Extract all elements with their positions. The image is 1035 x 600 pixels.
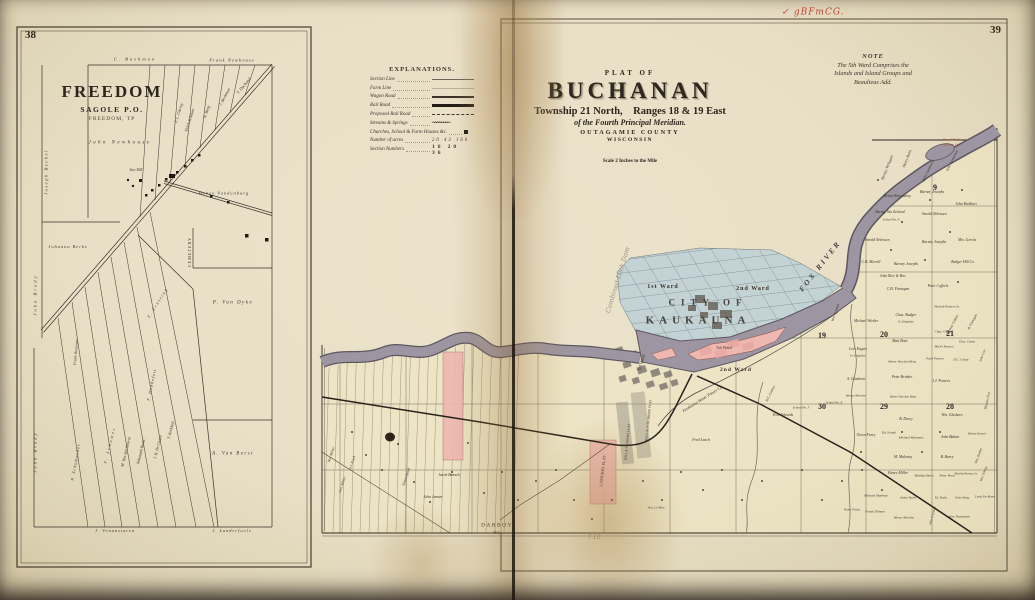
owner-label: Ed. Schmit [882, 431, 896, 434]
owner-label: Peter Coffeels [928, 285, 948, 289]
owner-label: Simon Spauk [402, 468, 411, 487]
owner-label: John Brody [34, 274, 39, 315]
owner-label: M. Vacks [935, 496, 947, 499]
owner-label: John Lamoreux [922, 160, 936, 183]
owner-label: Thomas Fox [984, 392, 991, 410]
owner-label: Michael Maloney [864, 494, 888, 497]
owner-label: Henry Bolin [903, 150, 914, 169]
owner-label: P. Van Dyke [213, 301, 253, 306]
owner-label: J. L. Garvey [174, 103, 184, 124]
owner-label: Henry Mechen [894, 516, 914, 519]
owner-label: Wm. Tondee [975, 448, 984, 464]
owner-label: Frank Bessemer [73, 339, 79, 365]
owner-label: Michael Wieder [854, 320, 878, 324]
red-ink-annotation: ✓ gBFmCG. [781, 9, 844, 18]
owner-label: J. Vonanstaren [95, 529, 135, 533]
owner-label: Wm. Miller [328, 447, 336, 464]
owner-label: J. Landerfools [212, 529, 251, 533]
owner-label: T. Kerkhofs [167, 421, 175, 440]
owner-label: Michael Mahoney [899, 436, 924, 439]
owner-label: B. Finnegan [968, 314, 979, 330]
owner-label: John Brody [34, 431, 39, 472]
owner-label: Frank Tillman [865, 510, 885, 513]
owner-label: Arnold Nelessen [922, 213, 947, 217]
owner-label: Geo. Miller [339, 476, 348, 493]
owner-label: John Rickhart [955, 203, 976, 207]
owner-label: J. B. De Coster [153, 435, 163, 460]
owner-label: Johanna Berks [48, 245, 87, 249]
owner-label: Louis De Bruin [975, 495, 995, 498]
atlas-scan: 38 39 FREEDOM SAGOLE P.O. FREEDOM, TP EX… [0, 0, 1035, 600]
owner-label: Peter Brinker [892, 376, 913, 380]
owner-label: Henry Mechen [846, 394, 866, 397]
section-number: 28 [946, 403, 954, 411]
section-number: 19 [818, 332, 826, 340]
mill-label: Chas. Mill & [942, 138, 959, 141]
owner-label: Barney Josephs [894, 263, 918, 267]
owner-label: Joseph Bechel [45, 149, 50, 195]
owner-label: N. Berg [203, 105, 211, 119]
city-label: KAUKAUNA [646, 316, 751, 327]
owner-label: Barney Josephs [920, 191, 944, 195]
river-label: FOX RIVER [798, 239, 843, 293]
school-label: School No. 8 [826, 401, 842, 404]
owner-label: John Bahan [941, 436, 959, 440]
owner-label: Matt Bour [892, 340, 908, 344]
owner-label: Henry Van den Berg [888, 360, 915, 363]
binding-fold [512, 0, 515, 600]
owner-label: John Steeg [955, 496, 969, 499]
owner-label: J.J. Powers [932, 380, 950, 384]
owner-label: Patrick Powers Sr. [934, 305, 959, 308]
owner-label: Peter Penn [939, 474, 954, 477]
owner-label: Erich Schauer [184, 108, 195, 132]
owner-label: W.S. Conkey [766, 385, 777, 402]
paper-stain [372, 505, 472, 600]
owner-label: J. Beckman [219, 87, 232, 106]
owner-label: Wm. Lamoreux [946, 150, 960, 172]
owner-label: John Coe [979, 349, 987, 362]
owner-label: B. Darcy [899, 418, 913, 422]
owner-label: C.B. Morrill [862, 261, 881, 265]
owner-label: Wm. F. Smith [831, 304, 840, 322]
owner-label: John Thomassen [948, 515, 970, 518]
section-number: 20 [880, 331, 888, 339]
city-label: CITY OF [669, 299, 748, 308]
owner-label: T. Duchand [236, 77, 252, 95]
owner-label: Henry Kessel [968, 432, 986, 435]
owner-label: Wm. Schrug [980, 466, 988, 482]
owner-label: Barney Verhagen [881, 155, 894, 181]
owner-label: Johannah Berks [136, 439, 146, 465]
owner-label: Barney Josephs [922, 241, 946, 245]
owner-label: A. Van Berst [212, 453, 254, 458]
owner-label: H.B. Edwards [773, 414, 793, 418]
owner-label: C.H. Finnegan [887, 288, 910, 292]
owner-label: C. Bushman [114, 58, 156, 63]
owner-label: Henry Miller [888, 472, 908, 476]
owner-label: In Litigation [898, 320, 914, 323]
paper-stain [532, 420, 682, 600]
ward-label: 2nd Ward [720, 368, 752, 374]
cemetery-label: CEMETERY [188, 237, 192, 267]
owner-label: Chas. Badger [896, 314, 917, 318]
owner-label: Thos. Chase [959, 340, 975, 343]
owner-label: John Freeman [929, 506, 937, 525]
ward-label: 5th Ward [716, 346, 731, 350]
owner-label: F. Schumer [103, 426, 116, 464]
owner-label: Mrs. Gerrits [958, 239, 976, 243]
owner-label: Patrick Powers Jr. [955, 472, 978, 475]
mill-label: McEwen Co. [942, 143, 959, 146]
owner-label: P. Schumacher [71, 443, 82, 481]
pencil-annotation: Combined Lock Dam [605, 246, 631, 314]
owner-label: Levi Engert [849, 348, 867, 352]
school-label: School No. 9 [883, 218, 899, 221]
ward-label: 1st Ward [647, 284, 678, 290]
owner-label: Henry Weyenberg [883, 195, 910, 199]
school-label: School No. 5 [793, 406, 809, 409]
owner-label: Pat'k Powers [926, 357, 943, 360]
owner-label: A. Glashorn [847, 378, 866, 382]
section-number: 30 [818, 403, 826, 411]
owner-label: Peter Flash [844, 508, 860, 511]
owner-label: Mathias Bunn [914, 474, 933, 477]
owner-label: B. Barry [940, 456, 953, 460]
owner-label: John Newhouse [89, 142, 152, 147]
owner-label: T. Ernsting [147, 287, 169, 319]
owner-label: Henry Van den Berg [890, 395, 916, 398]
ward-label: 3rd Ward [637, 354, 647, 372]
owner-label: Arnold Nelessen [865, 239, 890, 243]
owner-label: Owen Furry [857, 434, 876, 438]
owner-label: A.J. Koch [349, 456, 357, 470]
owner-label: In Litigation [850, 354, 866, 357]
ward-label: 2nd Ward [736, 286, 770, 292]
mill-label: Saw Mill [130, 169, 143, 173]
section-number: 29 [880, 403, 888, 411]
owner-label: Badger Mill Co. [951, 261, 974, 265]
owner-label: D.C. Chase [953, 358, 968, 361]
owner-label: Chas. Chase [935, 330, 952, 333]
company-label: Kaukauna Water Power Co. [682, 385, 724, 414]
owner-label: John Jansen [424, 496, 443, 500]
owner-label: Frank Newhouse [209, 59, 254, 64]
owner-label: Mich'l Powers [934, 345, 953, 348]
owner-label: T. Wubbefett [147, 368, 158, 401]
owner-label: Fred Leach [692, 439, 709, 443]
owner-label: Barney Van Zeeland [875, 211, 904, 215]
owner-label: Anton Yacht [900, 496, 916, 499]
owner-label: M. Maloney [894, 456, 912, 460]
owner-label: M. Van den Heuvel [120, 437, 131, 468]
owner-label: John Rice & Bro. [880, 275, 906, 279]
owner-label: Henry Vandenburg [199, 192, 250, 197]
owner-label: Wm. Glashorn [942, 414, 963, 418]
